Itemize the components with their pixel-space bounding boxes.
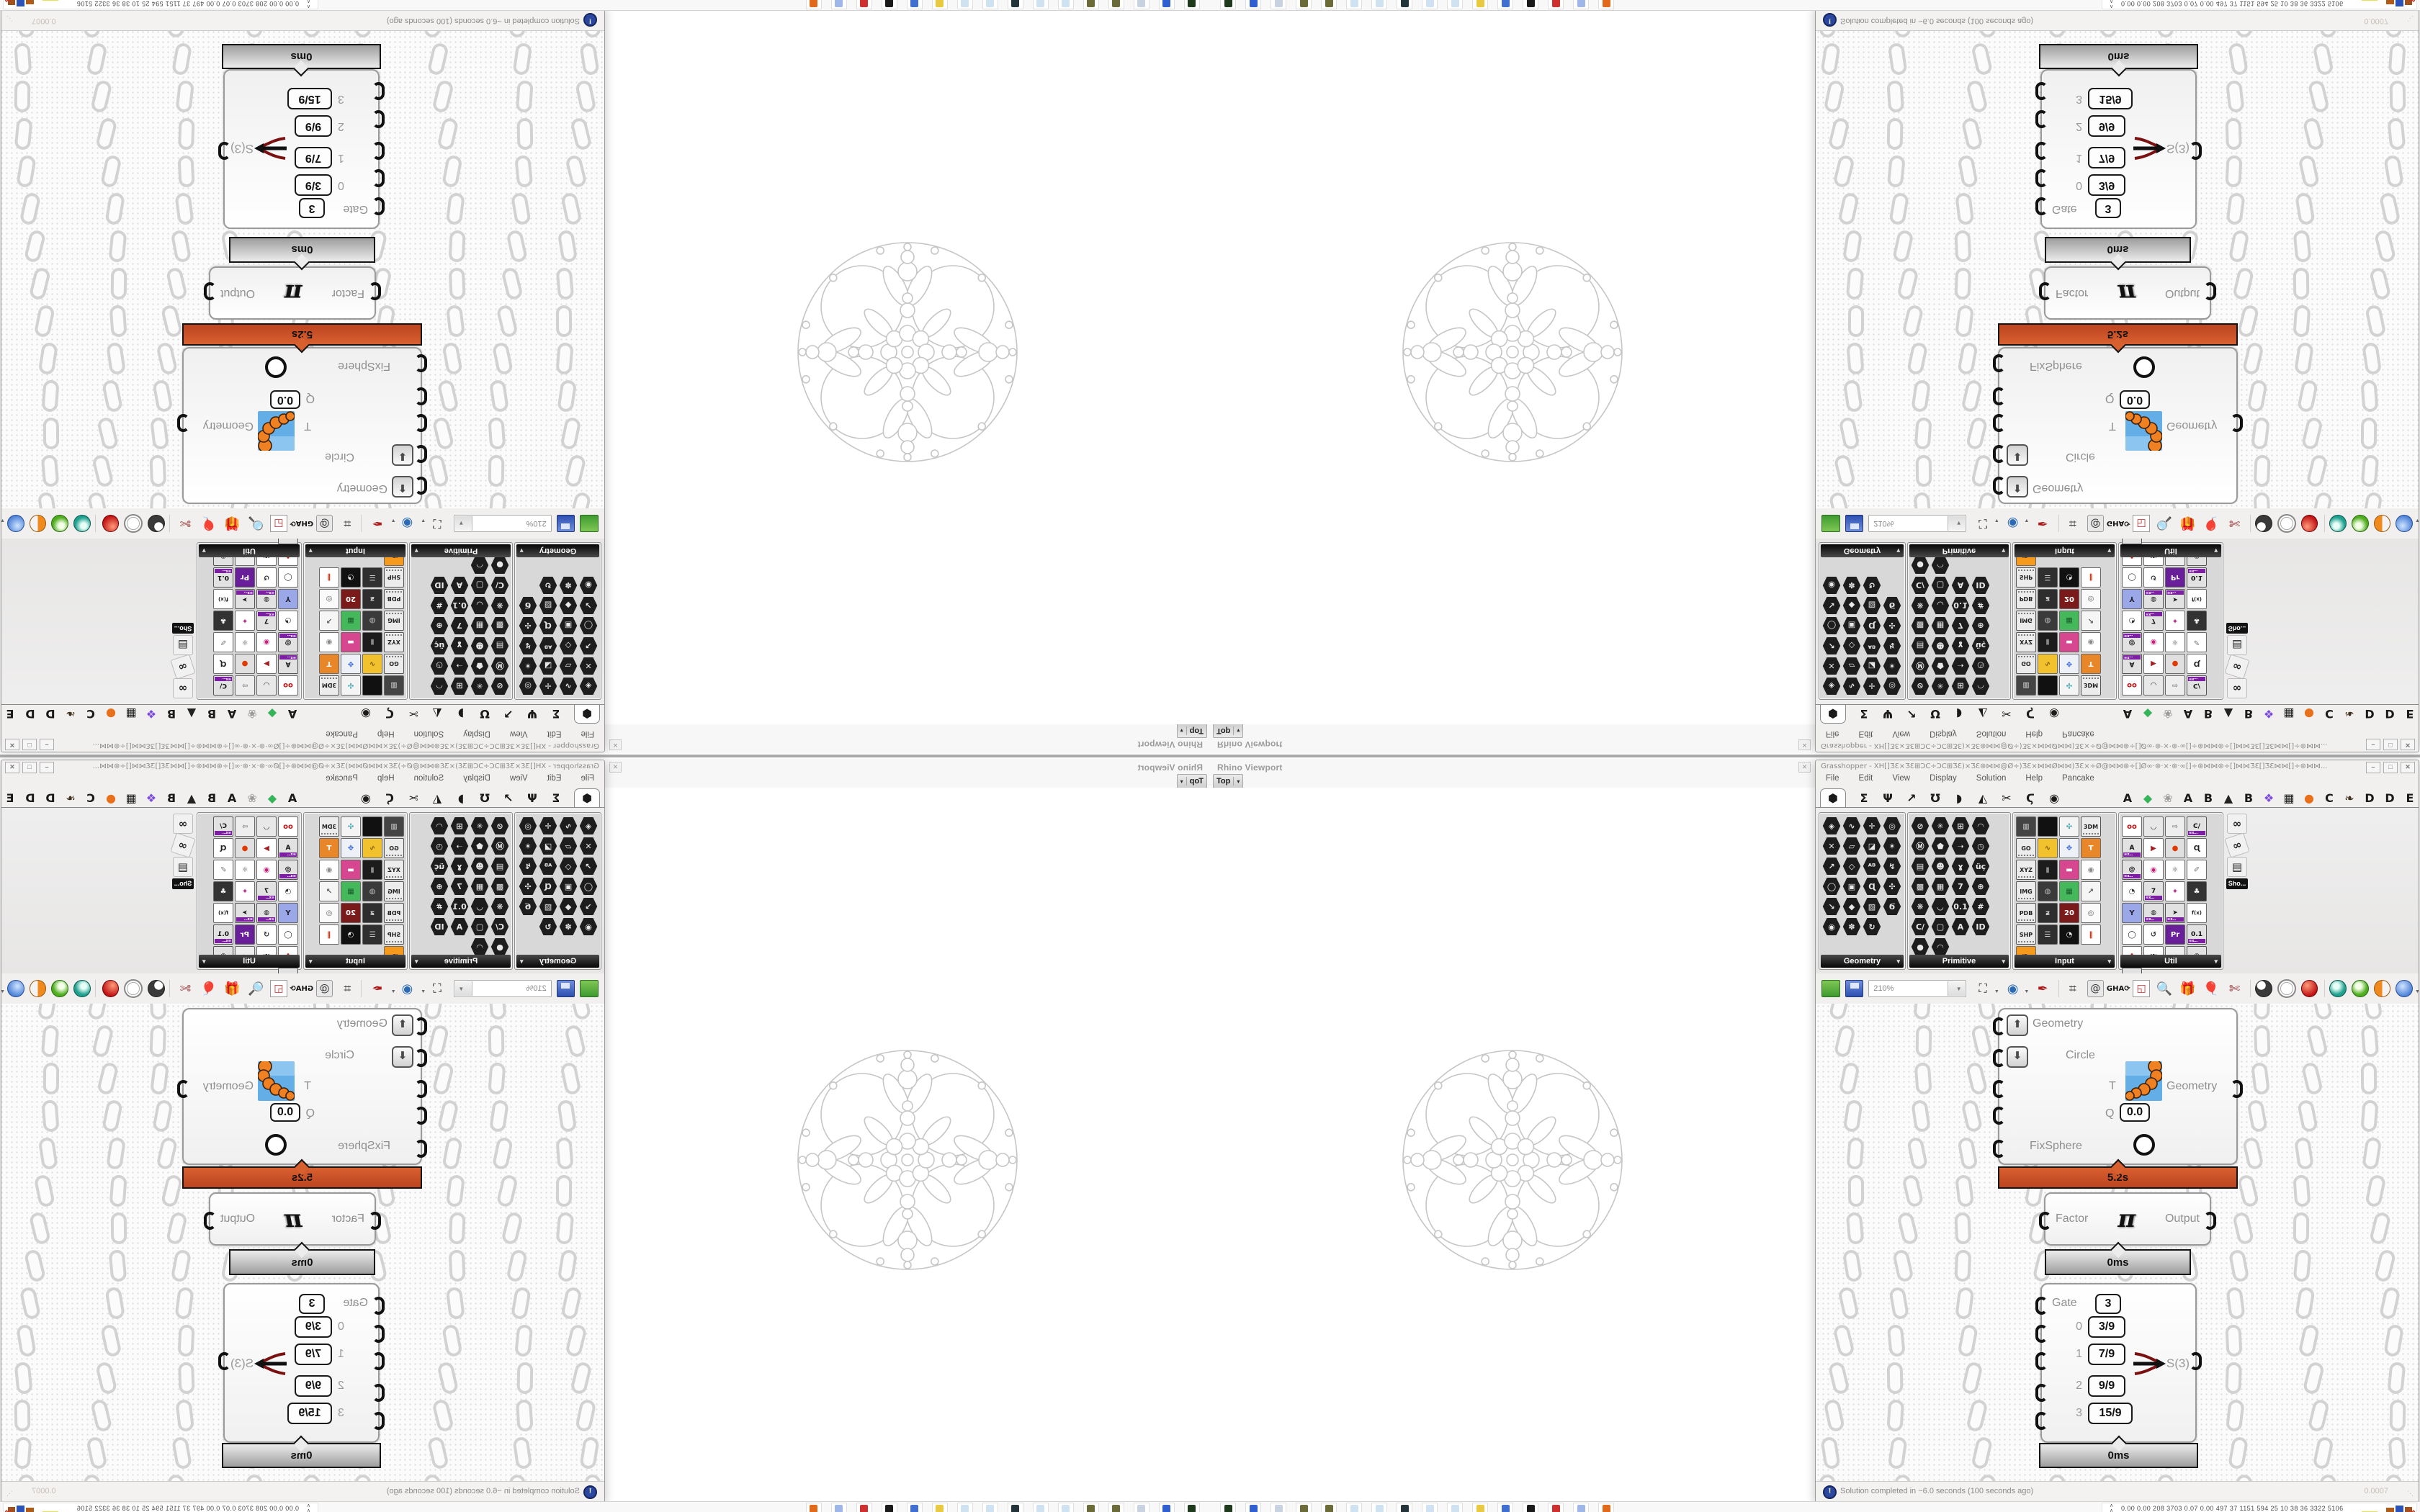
- component-icon[interactable]: ▨: [539, 596, 557, 615]
- component-icon[interactable]: ◔: [2059, 924, 2079, 945]
- minimize-button[interactable]: –: [2366, 739, 2380, 750]
- component-icon[interactable]: ▬: [341, 860, 361, 880]
- taskbar-app-icon[interactable]: [856, 1503, 872, 1512]
- taskbar-app-icon[interactable]: [1008, 0, 1023, 9]
- component-icon[interactable]: ●: [490, 556, 509, 575]
- search-icon[interactable]: 🔍: [2155, 979, 2174, 998]
- tab-plugin[interactable]: ❀: [242, 789, 262, 808]
- gate-row-value[interactable]: 3/9: [2088, 174, 2125, 196]
- component-icon[interactable]: ◍: [362, 611, 382, 631]
- title-bar[interactable]: Grasshopper - XH[]ƷƐ×ƷƐ⊞ƆC÷ƆC⊞ƷƐ)×ƷƐ⊛⋈⋈@…: [1, 738, 604, 752]
- save-file-icon[interactable]: [1845, 515, 1864, 532]
- component-icon[interactable]: ◉: [2081, 860, 2101, 880]
- component-icon[interactable]: ◔: [2122, 881, 2142, 901]
- title-bar[interactable]: Grasshopper - XH[]ƷƐ×ƷƐ⊞ƆC÷ƆC⊞ƷƐ)×ƷƐ⊛⋈⋈@…: [1816, 738, 2419, 752]
- component-icon[interactable]: 0.1: [450, 897, 469, 916]
- maximize-button[interactable]: □: [2383, 762, 2398, 773]
- output-socket[interactable]: [218, 142, 230, 160]
- view-selector-button[interactable]: Top ▾: [1213, 774, 1243, 788]
- component-icon[interactable]: A≡x…: [2122, 838, 2142, 858]
- surprise-box-icon[interactable]: 🎁: [2179, 979, 2197, 998]
- tab-plugin[interactable]: A: [282, 704, 302, 723]
- boolean-toggle[interactable]: [2133, 1134, 2155, 1156]
- component-icon[interactable]: ▢: [1931, 917, 1950, 936]
- component-icon[interactable]: ◡: [2143, 675, 2164, 696]
- tab-icon[interactable]: Ϛ: [2018, 704, 2043, 723]
- component-icon[interactable]: ◉: [1822, 917, 1841, 936]
- close-icon[interactable]: ✕: [609, 762, 622, 773]
- panel-label[interactable]: Primitive▾: [411, 955, 511, 968]
- component-icon[interactable]: Pr: [2165, 567, 2185, 588]
- wire-display-icon[interactable]: ✄: [176, 514, 195, 533]
- component-icon[interactable]: ⊘: [1911, 677, 1930, 696]
- component-icon[interactable]: ❋: [490, 596, 509, 615]
- preview-eye-icon[interactable]: ◉: [398, 514, 417, 533]
- component-icon[interactable]: ▮: [362, 632, 382, 652]
- panel-label[interactable]: Util▾: [199, 544, 300, 557]
- taskbar-app-icon[interactable]: [1296, 1503, 1312, 1512]
- component-icon[interactable]: ↯: [1883, 636, 1901, 655]
- menu-item-pancake[interactable]: Pancake: [326, 774, 358, 787]
- taskbar-app-icon[interactable]: [1159, 0, 1175, 9]
- input-socket[interactable]: [372, 197, 385, 215]
- preview-shaded-icon[interactable]: [2301, 515, 2318, 532]
- component-icon[interactable]: ✐: [213, 632, 233, 652]
- component-icon[interactable]: ☻: [1931, 857, 1950, 876]
- component-icon[interactable]: ◎: [2081, 903, 2101, 923]
- component-icon[interactable]: ∿: [2038, 838, 2058, 858]
- tab-plugin[interactable]: B: [2238, 789, 2259, 808]
- component-icon[interactable]: ✣: [1883, 877, 1901, 896]
- tab-plugin[interactable]: A: [222, 789, 242, 808]
- component-icon[interactable]: ↯: [519, 636, 537, 655]
- viewport-canvas[interactable]: [1210, 788, 1815, 1501]
- component-icon[interactable]: ɣ: [450, 636, 469, 655]
- taskbar-app-icon[interactable]: [1548, 0, 1564, 9]
- output-socket[interactable]: [2231, 1080, 2243, 1098]
- component-icon[interactable]: ⬟: [1931, 657, 1950, 675]
- input-socket[interactable]: [1993, 1080, 2005, 1098]
- component-icon[interactable]: A: [450, 576, 469, 595]
- taskbar-app-icon[interactable]: [1371, 0, 1387, 9]
- fixsphere-component[interactable]: ⬆ ⬇ Geometry Circle T Q 0.0 FixSphere G: [1998, 1008, 2238, 1165]
- glasses-icon[interactable]: ∞: [170, 654, 195, 679]
- component-icon[interactable]: ✽: [1842, 917, 1861, 936]
- component-icon[interactable]: ↗: [2081, 611, 2101, 631]
- tab-icon[interactable]: ⬢: [1820, 788, 1846, 808]
- input-socket[interactable]: [415, 354, 427, 372]
- component-icon[interactable]: ✽: [559, 917, 578, 936]
- taskbar-app-icon[interactable]: [1184, 0, 1200, 9]
- tab-icon[interactable]: ◗: [449, 704, 473, 723]
- tab-icon[interactable]: Ψ: [1875, 704, 1900, 723]
- close-button[interactable]: ✕: [5, 739, 19, 750]
- component-icon[interactable]: ∿: [362, 654, 382, 674]
- menu-item-view[interactable]: View: [510, 774, 528, 787]
- input-socket[interactable]: [372, 82, 385, 100]
- tab-icon[interactable]: Ʊ: [1923, 704, 1948, 723]
- grasshopper-canvas[interactable]: ⬆ ⬇ Geometry Circle T Q 0.0 FixSphere G: [1, 30, 604, 508]
- component-icon[interactable]: ➝: [1951, 657, 1970, 675]
- component-icon[interactable]: oo: [2122, 675, 2142, 696]
- component-icon[interactable]: GO: [2016, 838, 2036, 858]
- preview-document-icon[interactable]: [2352, 980, 2369, 997]
- component-icon[interactable]: ↺: [256, 567, 277, 588]
- graft-icon[interactable]: ⬇: [392, 1046, 413, 1068]
- panel-label[interactable]: Geometry▾: [1821, 544, 1904, 557]
- chevron-down-icon[interactable]: ▼: [421, 518, 426, 523]
- component-icon[interactable]: ▥: [384, 675, 404, 696]
- obscure-viewport-icon[interactable]: ⌗: [338, 514, 357, 533]
- gate-row-value[interactable]: 3/9: [295, 174, 332, 196]
- component-icon[interactable]: ⊘: [490, 677, 509, 696]
- input-socket[interactable]: [415, 1080, 427, 1098]
- flatten-icon[interactable]: ⬆: [392, 476, 413, 498]
- taskbar-app-icon[interactable]: [982, 1503, 998, 1512]
- resize-grip[interactable]: ⋱: [2407, 1490, 2416, 1498]
- title-bar[interactable]: Grasshopper - XH[]ƷƐ×ƷƐ⊞ƆC÷ƆC⊞ƷƐ)×ƷƐ⊛⋈⋈@…: [1816, 760, 2419, 774]
- component-icon[interactable]: 0.1: [1951, 897, 1970, 916]
- component-icon[interactable]: ✳: [1931, 816, 1950, 835]
- component-icon[interactable]: ☰: [2038, 567, 2058, 588]
- tab-icon[interactable]: ↗: [496, 789, 521, 808]
- component-icon[interactable]: ▢: [470, 917, 489, 936]
- component-icon[interactable]: Ϭ: [519, 897, 537, 916]
- tab-icon[interactable]: ◗: [1947, 789, 1971, 808]
- taskbar-app-icon[interactable]: [1397, 1503, 1412, 1512]
- component-icon[interactable]: A≡x…: [278, 838, 298, 858]
- component-icon[interactable]: ⇨: [2165, 675, 2185, 696]
- tab-plugin[interactable]: ❀: [242, 704, 262, 723]
- component-icon[interactable]: ↻: [1863, 917, 1881, 936]
- component-icon[interactable]: ⊕: [1971, 616, 1990, 635]
- component-icon[interactable]: ▦: [2059, 881, 2079, 901]
- zoom-level-combo[interactable]: 210% ▼: [454, 515, 552, 532]
- component-icon[interactable]: ◯: [278, 567, 298, 588]
- component-icon[interactable]: ✣: [519, 877, 537, 896]
- tab-plugin[interactable]: D: [2380, 704, 2400, 723]
- taskbar-app-icon[interactable]: [1296, 0, 1312, 9]
- taskbar-app-icon[interactable]: [1321, 1503, 1337, 1512]
- component-icon[interactable]: ɣ: [1951, 857, 1970, 876]
- panel-label-truncated[interactable]: Sho...: [2226, 878, 2248, 889]
- component-icon[interactable]: ◷: [430, 657, 449, 675]
- tab-plugin[interactable]: A: [2117, 789, 2138, 808]
- stream-filter-component[interactable]: Gate 3 03/917/929/9315/9 S(3): [2040, 1283, 2197, 1443]
- component-icon[interactable]: ‖: [319, 567, 339, 588]
- component-icon[interactable]: ▮: [362, 860, 382, 880]
- gate-row-value[interactable]: 9/9: [2088, 1375, 2125, 1397]
- component-icon[interactable]: ƶ: [362, 903, 382, 923]
- menu-item-edit[interactable]: Edit: [547, 725, 562, 738]
- component-icon[interactable]: 3DM: [319, 816, 339, 837]
- component-icon[interactable]: A: [450, 917, 469, 936]
- component-icon[interactable]: ◠: [470, 937, 489, 956]
- menu-item-help[interactable]: Help: [2025, 774, 2043, 787]
- tab-plugin[interactable]: C: [81, 789, 101, 808]
- component-icon[interactable]: ◆: [1842, 596, 1861, 615]
- component-icon[interactable]: ⬟: [1931, 837, 1950, 855]
- component-icon[interactable]: ✳: [470, 816, 489, 835]
- component-icon[interactable]: 20: [2059, 903, 2079, 923]
- component-icon[interactable]: ◯: [2122, 924, 2142, 945]
- viewport-canvas[interactable]: [605, 11, 1210, 724]
- component-icon[interactable]: ↺: [2143, 924, 2164, 945]
- component-icon[interactable]: ◡: [470, 897, 489, 916]
- component-icon[interactable]: ●: [2165, 838, 2185, 858]
- input-socket[interactable]: [2035, 1297, 2048, 1315]
- component-icon[interactable]: ❋: [490, 897, 509, 916]
- component-icon[interactable]: ❋: [1911, 596, 1930, 615]
- gha-assembly-icon[interactable]: GHA⟳: [2109, 979, 2128, 998]
- component-icon[interactable]: PDB: [384, 589, 404, 609]
- fixsphere-component[interactable]: ⬆ ⬇ Geometry Circle T Q 0.0 FixSphere G: [182, 1008, 422, 1165]
- component-icon[interactable]: A: [1951, 576, 1970, 595]
- tab-icon[interactable]: ✂: [1994, 704, 2019, 723]
- glasses-icon[interactable]: ∞: [173, 678, 193, 698]
- taskbar-app-icon[interactable]: [1573, 1503, 1589, 1512]
- component-icon[interactable]: ∿: [362, 838, 382, 858]
- input-socket[interactable]: [1993, 1140, 2005, 1158]
- chevron-down-icon[interactable]: ▼: [1994, 989, 1999, 994]
- component-icon[interactable]: ✕: [1822, 657, 1841, 675]
- component-icon[interactable]: ◇: [559, 636, 578, 655]
- component-icon[interactable]: ◎: [519, 677, 537, 696]
- component-icon[interactable]: Ɋ: [213, 654, 233, 674]
- component-icon[interactable]: IMG: [384, 611, 404, 631]
- pi-component[interactable]: Factor π Output: [209, 1192, 376, 1246]
- component-icon[interactable]: ◉: [319, 632, 339, 652]
- component-icon[interactable]: ◯: [278, 924, 298, 945]
- component-icon[interactable]: ♣: [2187, 881, 2207, 901]
- component-icon[interactable]: ⬟: [470, 837, 489, 855]
- tab-icon[interactable]: Ʊ: [472, 789, 497, 808]
- tab-plugin[interactable]: A: [222, 704, 242, 723]
- preview-wireframe-icon[interactable]: [124, 514, 143, 533]
- component-icon[interactable]: @≡x…: [278, 632, 298, 652]
- component-icon[interactable]: ●: [490, 937, 509, 956]
- component-icon[interactable]: ▦: [470, 616, 489, 635]
- component-icon[interactable]: 7: [1951, 616, 1970, 635]
- gha-assembly-icon[interactable]: GHA⟳: [292, 514, 311, 533]
- component-icon[interactable]: 7≡x…: [256, 611, 277, 631]
- panel-label-truncated[interactable]: Sho...: [172, 878, 194, 889]
- component-icon[interactable]: f(x): [2187, 589, 2207, 609]
- balloons-icon[interactable]: 🎈: [2202, 514, 2220, 533]
- output-socket[interactable]: [204, 1212, 216, 1230]
- input-socket[interactable]: [369, 1212, 381, 1230]
- component-icon[interactable]: ✦: [2165, 881, 2185, 901]
- menu-item-display[interactable]: Display: [463, 725, 490, 738]
- tab-plugin[interactable]: D: [2359, 789, 2380, 808]
- component-icon[interactable]: ▬: [341, 632, 361, 652]
- menu-item-solution[interactable]: Solution: [414, 774, 444, 787]
- tab-icon[interactable]: ◭: [425, 704, 449, 723]
- component-icon[interactable]: [362, 816, 382, 837]
- component-icon[interactable]: Ɋ: [539, 616, 557, 635]
- component-icon[interactable]: ᴬᴮ: [539, 857, 557, 876]
- component-icon[interactable]: ▬: [2059, 632, 2079, 652]
- preview-selected-icon[interactable]: [30, 515, 47, 532]
- sketch-pen-icon[interactable]: ✒: [2033, 979, 2052, 998]
- component-icon[interactable]: ●: [235, 654, 255, 674]
- component-icon[interactable]: ◠: [1971, 677, 1990, 696]
- tab-icon[interactable]: ◗: [449, 789, 473, 808]
- component-icon[interactable]: ✳: [470, 677, 489, 696]
- component-icon[interactable]: ▱: [1842, 837, 1861, 855]
- panel-label[interactable]: Util▾: [2120, 955, 2221, 968]
- preview-selected-icon[interactable]: [2374, 515, 2391, 532]
- preview-shaded-icon[interactable]: [102, 980, 120, 997]
- menu-item-edit[interactable]: Edit: [1859, 774, 1873, 787]
- component-icon[interactable]: Y: [2122, 589, 2142, 609]
- component-icon[interactable]: ‖: [2081, 567, 2101, 588]
- tab-plugin[interactable]: D: [2359, 704, 2380, 723]
- save-file-icon[interactable]: [557, 515, 575, 532]
- component-icon[interactable]: ◷: [1971, 657, 1990, 675]
- component-icon[interactable]: ◍: [2038, 611, 2058, 631]
- component-icon[interactable]: ID: [1971, 917, 1990, 936]
- component-icon[interactable]: ▮: [2038, 632, 2058, 652]
- taskbar-app-icon[interactable]: [1159, 1503, 1175, 1512]
- component-icon[interactable]: C/: [1911, 576, 1930, 595]
- resize-grip[interactable]: ⋱: [4, 1490, 13, 1498]
- component-icon[interactable]: ▱: [559, 657, 578, 675]
- gate-value-box[interactable]: 3: [299, 1294, 325, 1314]
- tab-icon[interactable]: Ϛ: [377, 789, 402, 808]
- tab-plugin[interactable]: D: [40, 704, 60, 723]
- input-socket[interactable]: [372, 110, 385, 128]
- tab-plugin[interactable]: E: [2400, 704, 2419, 723]
- tab-icon[interactable]: ◉: [2042, 704, 2066, 723]
- zoom-extents-icon[interactable]: ⛶: [1973, 979, 1992, 998]
- gate-row-value[interactable]: 7/9: [2088, 1344, 2125, 1365]
- tab-plugin[interactable]: ❖: [141, 704, 161, 723]
- component-icon[interactable]: ◷: [1971, 837, 1990, 855]
- component-icon[interactable]: ◍≡x…: [256, 903, 277, 923]
- q-value-box[interactable]: 0.0: [270, 1103, 300, 1122]
- taskbar-app-icon[interactable]: [1134, 1503, 1149, 1512]
- component-icon[interactable]: 7≡x…: [2143, 881, 2164, 901]
- open-file-icon[interactable]: [580, 980, 599, 997]
- tab-icon[interactable]: Ψ: [1875, 789, 1900, 808]
- tab-icon[interactable]: ↗: [496, 704, 521, 723]
- input-socket[interactable]: [2039, 1212, 2051, 1230]
- input-socket[interactable]: [372, 1352, 385, 1370]
- screen-icon[interactable]: ▤: [2227, 635, 2247, 655]
- preview-selected-icon[interactable]: [30, 980, 47, 997]
- fixsphere-component[interactable]: ⬆ ⬇ Geometry Circle T Q 0.0 FixSphere G: [1998, 347, 2238, 504]
- wire-display-icon[interactable]: ✄: [2226, 514, 2244, 533]
- taskbar-app-icon[interactable]: [1033, 1503, 1049, 1512]
- taskbar-app-icon[interactable]: [1371, 1503, 1387, 1512]
- tab-plugin[interactable]: C: [2319, 704, 2339, 723]
- zoom-extents-icon[interactable]: ⛶: [428, 979, 447, 998]
- tab-icon[interactable]: ✂: [1994, 789, 2019, 808]
- tab-plugin[interactable]: A: [2178, 704, 2198, 723]
- component-icon[interactable]: GO: [384, 838, 404, 858]
- preview-shaded-icon[interactable]: [2301, 980, 2318, 997]
- annotate-icon[interactable]: @: [2087, 515, 2105, 532]
- component-icon[interactable]: ✣: [519, 616, 537, 635]
- output-socket[interactable]: [2204, 282, 2216, 300]
- preview-eye-icon[interactable]: ◉: [2004, 514, 2022, 533]
- component-icon[interactable]: ◪: [539, 837, 557, 855]
- component-icon[interactable]: ▶: [256, 654, 277, 674]
- component-icon[interactable]: ☻: [470, 857, 489, 876]
- component-icon[interactable]: SHP: [2016, 567, 2036, 588]
- taskbar-app-icon[interactable]: [1108, 1503, 1124, 1512]
- component-icon[interactable]: ⊞: [450, 677, 469, 696]
- taskbar-app-icon[interactable]: [1472, 1503, 1488, 1512]
- taskbar-app-icon[interactable]: [982, 0, 998, 9]
- display-mode-icon[interactable]: [7, 515, 24, 532]
- balloons-icon[interactable]: 🎈: [2202, 979, 2220, 998]
- component-icon[interactable]: ✐: [2187, 860, 2207, 880]
- tab-plugin[interactable]: C: [81, 704, 101, 723]
- annotate-icon[interactable]: @: [2087, 980, 2105, 997]
- component-icon[interactable]: ◔: [278, 881, 298, 901]
- component-icon[interactable]: Pr: [2165, 924, 2185, 945]
- tab-plugin[interactable]: ▲: [2218, 704, 2238, 723]
- export-view-icon[interactable]: ◱: [2133, 515, 2150, 532]
- tab-icon[interactable]: ⬢: [574, 704, 600, 724]
- component-icon[interactable]: #: [430, 596, 449, 615]
- tab-plugin[interactable]: ❀: [2158, 789, 2178, 808]
- taskbar-app-icon[interactable]: [907, 0, 923, 9]
- tab-plugin[interactable]: E: [1, 704, 20, 723]
- component-icon[interactable]: ☰: [362, 924, 382, 945]
- graft-icon[interactable]: ⬇: [392, 444, 413, 466]
- component-icon[interactable]: ƶ: [362, 589, 382, 609]
- component-icon[interactable]: ▨: [539, 897, 557, 916]
- component-icon[interactable]: ◎: [319, 589, 339, 609]
- taskbar-app-icon[interactable]: [1033, 0, 1049, 9]
- glasses-icon[interactable]: ∞: [2224, 832, 2249, 858]
- preview-custom-icon[interactable]: [73, 515, 91, 532]
- input-socket[interactable]: [415, 1017, 427, 1035]
- graft-icon[interactable]: ⬇: [2007, 444, 2028, 466]
- component-icon[interactable]: Pr: [235, 567, 255, 588]
- tab-plugin[interactable]: B: [202, 789, 222, 808]
- component-icon[interactable]: ✣: [341, 816, 361, 837]
- component-icon[interactable]: ▦: [341, 881, 361, 901]
- component-icon[interactable]: ↗: [579, 636, 598, 655]
- tray-expand-icon[interactable]: ∧∧: [2110, 0, 2113, 9]
- component-icon[interactable]: ◠: [1971, 816, 1990, 835]
- component-icon[interactable]: [362, 675, 382, 696]
- component-icon[interactable]: ❋: [1911, 897, 1930, 916]
- component-icon[interactable]: ↗: [2081, 881, 2101, 901]
- screen-icon[interactable]: ▤: [173, 857, 193, 877]
- component-icon[interactable]: ∿: [559, 816, 578, 835]
- panel-label[interactable]: Geometry▾: [1821, 955, 1904, 968]
- grasshopper-canvas[interactable]: ⬆ ⬇ Geometry Circle T Q 0.0 FixSphere G: [1816, 30, 2419, 508]
- flatten-icon[interactable]: ⬆: [392, 1014, 413, 1036]
- component-icon[interactable]: ID: [430, 917, 449, 936]
- component-icon[interactable]: ↗: [579, 857, 598, 876]
- tab-plugin[interactable]: ◆: [262, 789, 282, 808]
- component-icon[interactable]: Y: [2122, 903, 2142, 923]
- component-icon[interactable]: üç: [1971, 636, 1990, 655]
- input-socket[interactable]: [415, 1049, 427, 1067]
- component-icon[interactable]: ◉: [1822, 576, 1841, 595]
- component-icon[interactable]: ✥: [2059, 838, 2079, 858]
- taskbar-app-icon[interactable]: [1220, 0, 1236, 9]
- component-icon[interactable]: 0.1≡x…: [213, 567, 233, 588]
- component-icon[interactable]: ↗: [1822, 636, 1841, 655]
- component-icon[interactable]: ▩: [1911, 616, 1930, 635]
